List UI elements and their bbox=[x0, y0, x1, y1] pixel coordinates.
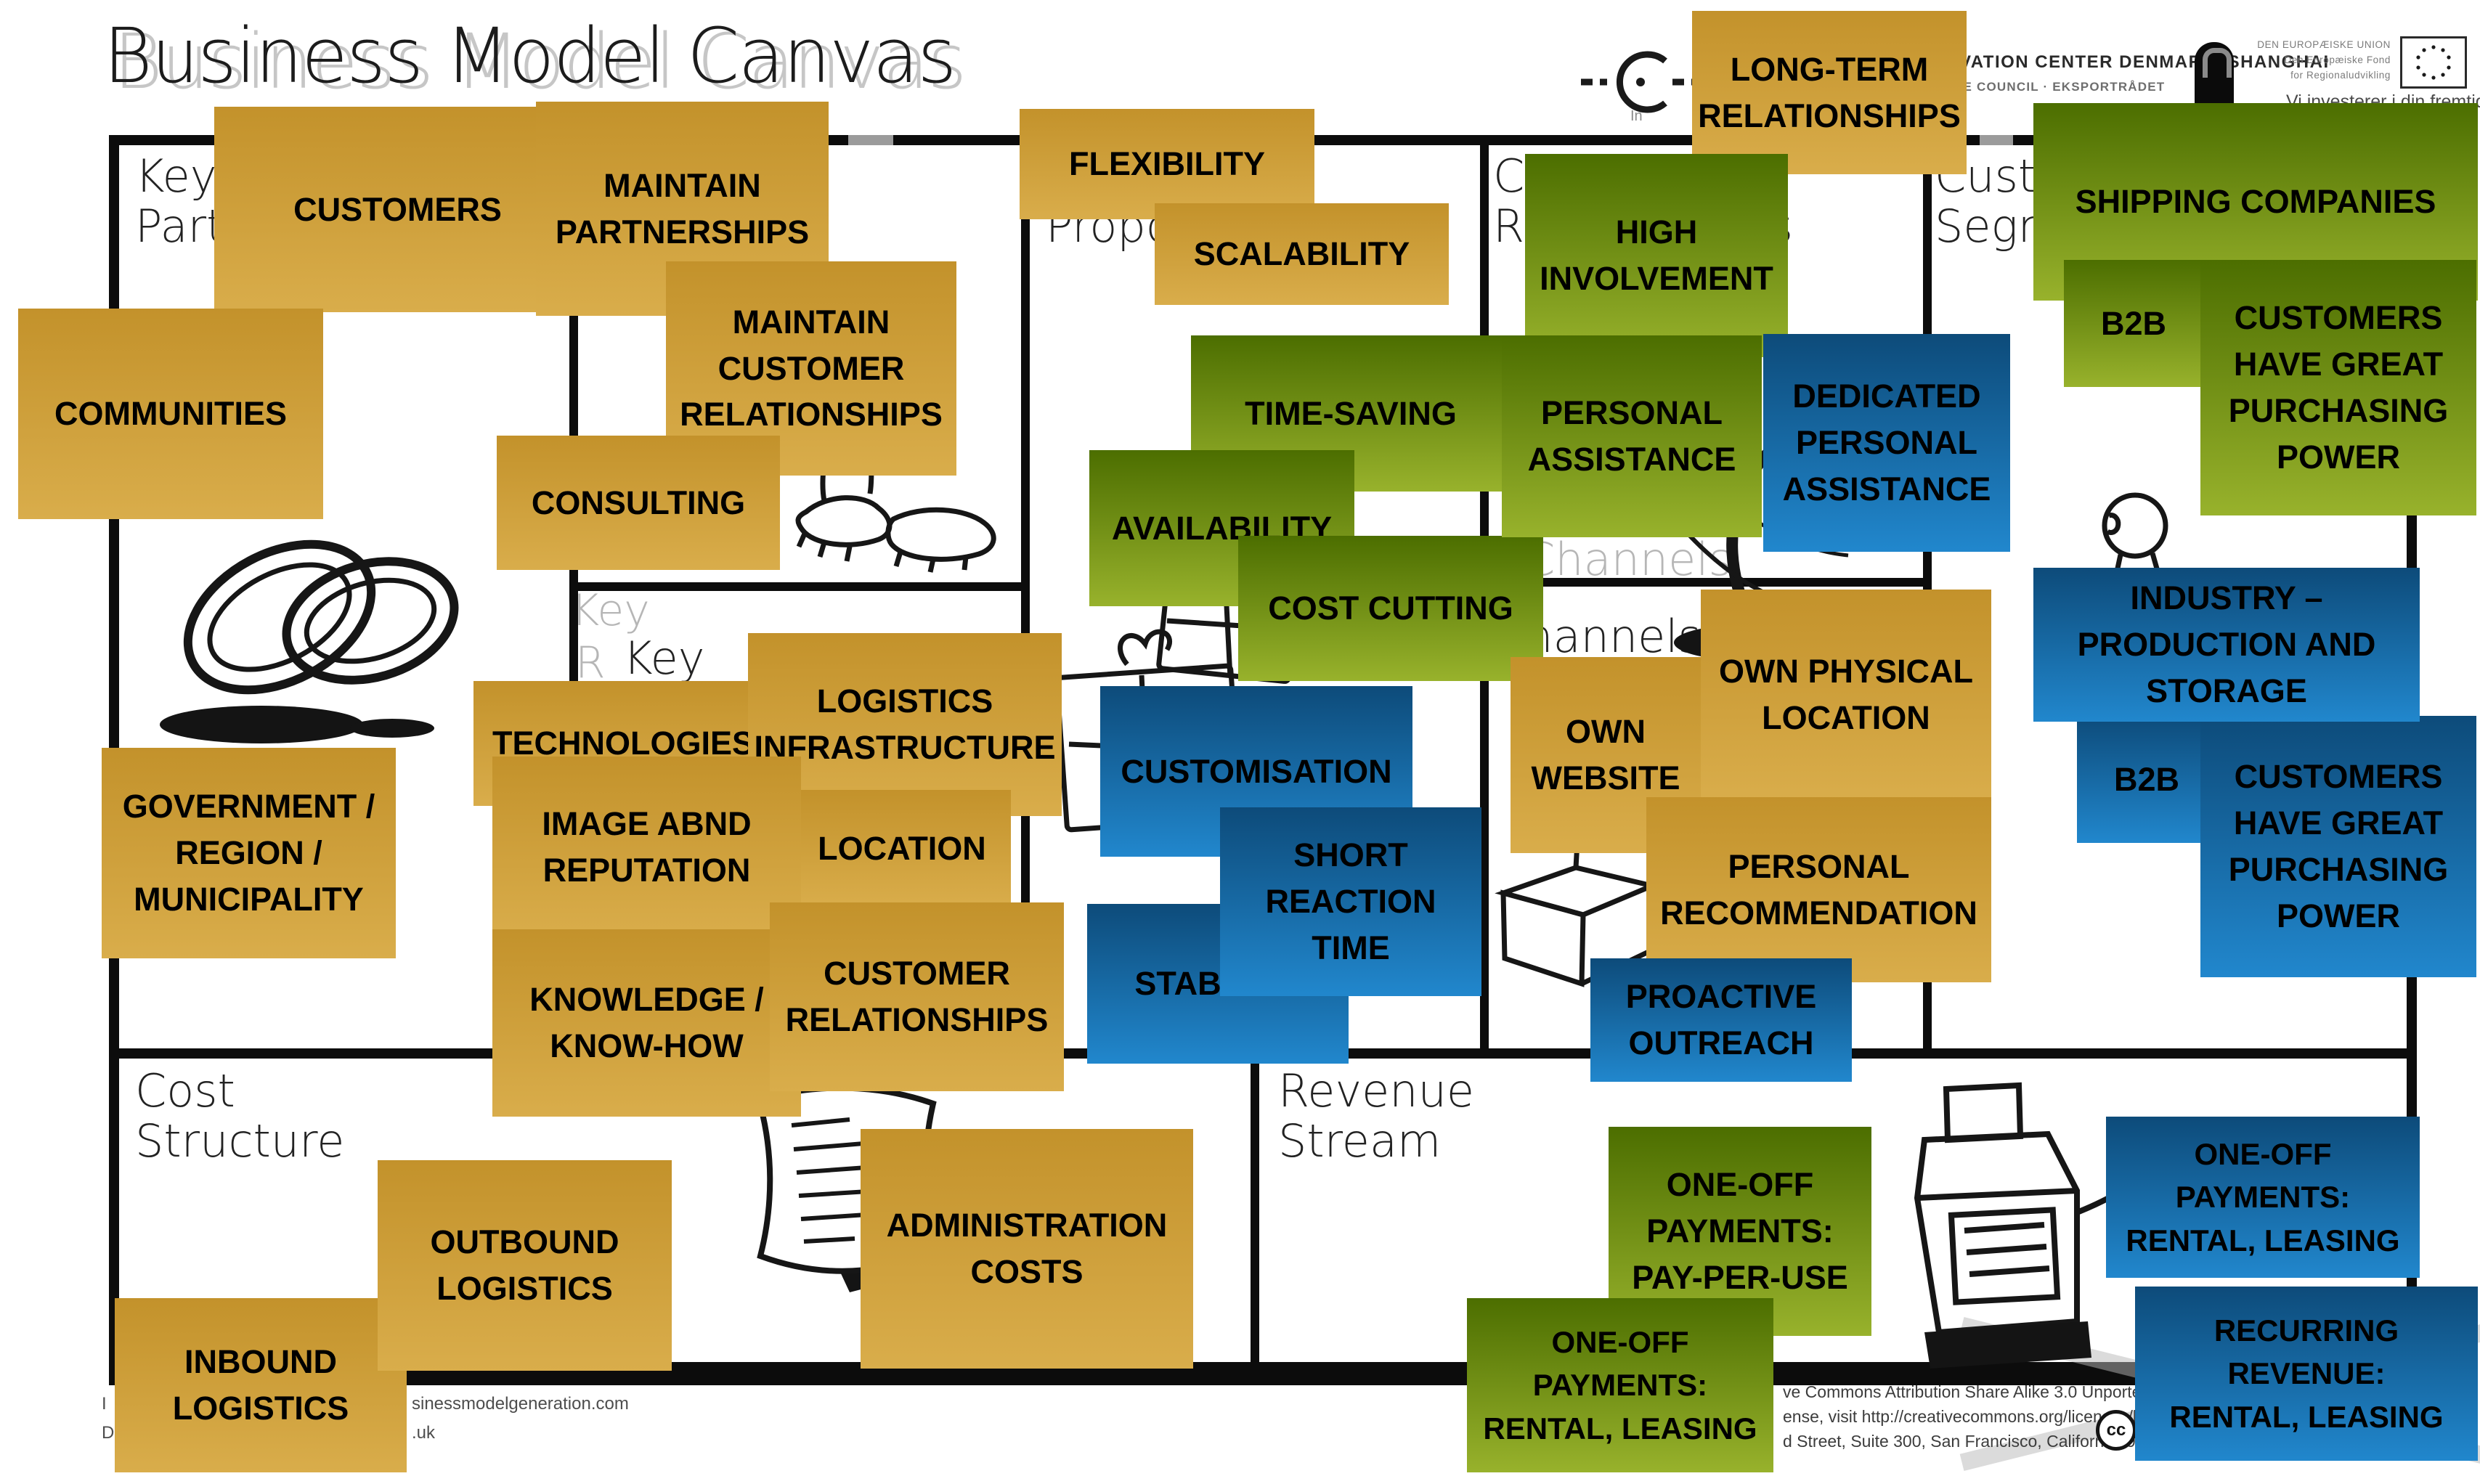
note-customers: CUSTOMERS bbox=[214, 107, 581, 312]
note-location: LOCATION bbox=[793, 790, 1011, 908]
page-title: Business Model Canvas bbox=[103, 12, 955, 100]
note-knowledge-know-how: KNOWLEDGE / KNOW-HOW bbox=[492, 929, 801, 1117]
note-communities: COMMUNITIES bbox=[18, 309, 323, 519]
grid-worn-segment bbox=[1980, 135, 2013, 145]
partner-c-logo-icon: In bbox=[1580, 42, 1699, 126]
note-personal-assistance: PERSONAL ASSISTANCE bbox=[1502, 335, 1762, 537]
footer-left-source2: .uk bbox=[412, 1423, 435, 1443]
note-b2b-blue: B2B bbox=[2077, 716, 2216, 843]
heading-cost-structure: Cost Structure bbox=[135, 1066, 344, 1167]
note-inbound-logistics: INBOUND LOGISTICS bbox=[115, 1298, 407, 1472]
eu-flag-icon bbox=[2400, 36, 2467, 89]
note-own-physical-location: OWN PHYSICAL LOCATION bbox=[1701, 590, 1991, 800]
note-customers-purchasing-power-green: CUSTOMERS HAVE GREAT PURCHASING POWER bbox=[2200, 260, 2476, 515]
grid-worn-segment bbox=[848, 135, 893, 145]
note-cost-cutting: COST CUTTING bbox=[1238, 536, 1543, 681]
key-resources-ghost: Key bbox=[571, 585, 650, 636]
note-customer-relationships: CUSTOMER RELATIONSHIPS bbox=[770, 902, 1064, 1091]
interlocked-rings-sketch bbox=[153, 508, 472, 748]
footer-left-source: sinessmodelgeneration.com bbox=[412, 1394, 629, 1414]
eu-logo-text: DEN EUROPÆISKE UNION Den Europæiske Fond… bbox=[2237, 38, 2391, 83]
footer-left-fragment: I bbox=[102, 1394, 107, 1414]
grid-vline-cost-revenue bbox=[1251, 1048, 1259, 1372]
note-short-reaction-time: SHORT REACTION TIME bbox=[1220, 807, 1481, 996]
note-oneoff-rental-leasing-blue: ONE-OFF PAYMENTS: RENTAL, LEASING bbox=[2106, 1117, 2420, 1278]
note-customers-purchasing-power-blue: CUSTOMERS HAVE GREAT PURCHASING POWER bbox=[2200, 716, 2476, 977]
note-personal-recommendation: PERSONAL RECOMMENDATION bbox=[1646, 797, 1991, 982]
note-outbound-logistics: OUTBOUND LOGISTICS bbox=[378, 1160, 672, 1371]
note-proactive-outreach: PROACTIVE OUTREACH bbox=[1590, 958, 1852, 1082]
business-model-canvas-poster: Business Model Canvas Business Model Can… bbox=[0, 0, 2480, 1484]
note-consulting: CONSULTING bbox=[497, 436, 780, 570]
license-line1: ve Commons Attribution Share Alike 3.0 U… bbox=[1783, 1382, 2195, 1402]
note-recurring-revenue: RECURRING REVENUE: RENTAL, LEASING bbox=[2135, 1287, 2478, 1461]
note-government-region-municipality: GOVERNMENT / REGION / MUNICIPALITY bbox=[102, 748, 396, 958]
note-oneoff-rental-leasing-green: ONE-OFF PAYMENTS: RENTAL, LEASING bbox=[1467, 1298, 1773, 1472]
footer-left-fragment2: D bbox=[102, 1423, 114, 1443]
note-dedicated-personal-assistance: DEDICATED PERSONAL ASSISTANCE bbox=[1763, 334, 2010, 552]
note-long-term-relationships: LONG-TERM RELATIONSHIPS bbox=[1692, 11, 1967, 174]
person-head-sketch bbox=[2086, 488, 2184, 579]
note-high-involvement: HIGH INVOLVEMENT bbox=[1525, 154, 1788, 357]
cc-icon: cc bbox=[2096, 1410, 2137, 1451]
svg-text:In: In bbox=[1630, 108, 1643, 124]
note-administration-costs: ADMINISTRATION COSTS bbox=[861, 1129, 1193, 1369]
heading-revenue-stream: Revenue Stream bbox=[1278, 1066, 1474, 1167]
note-scalability: SCALABILITY bbox=[1155, 203, 1449, 305]
note-industry-production-storage: INDUSTRY – PRODUCTION AND STORAGE bbox=[2033, 568, 2420, 722]
note-b2b-green: B2B bbox=[2064, 260, 2203, 387]
note-image-and-reputation: IMAGE ABND REPUTATION bbox=[492, 757, 801, 938]
